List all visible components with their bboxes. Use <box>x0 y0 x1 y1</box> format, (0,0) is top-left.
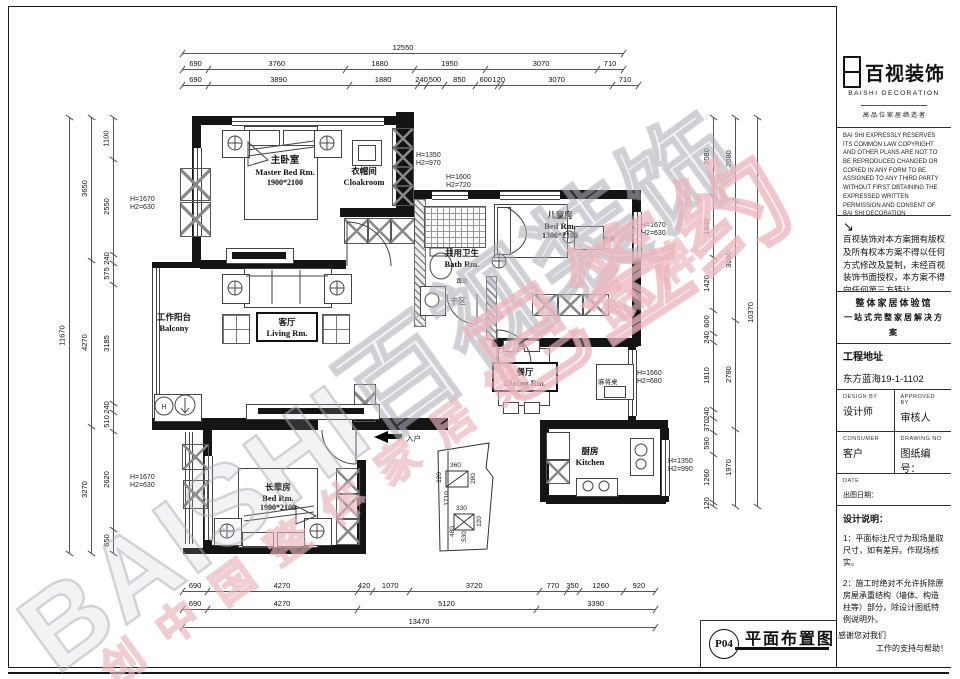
wall-segment <box>340 208 414 217</box>
height-label: H=1670H2=630 <box>641 222 666 239</box>
drawing-sheet: H 主卧室 Master Bed Rm. 1900*2100 衣帽间 Cloak… <box>0 0 960 679</box>
approved-by-cell: APPROVED BY审核人 <box>894 390 952 431</box>
company-tagline: ·高·品·位·家·居·缔·造·者· <box>861 105 927 119</box>
sofa <box>244 268 332 308</box>
address-label: 工程地址 <box>843 348 945 363</box>
height-label: H=1350H2=970 <box>416 152 441 169</box>
company-name-en: BAISHI DECORATION <box>848 90 939 97</box>
desk-label: 书桌 <box>602 233 615 243</box>
pillow <box>248 130 280 146</box>
sheet-border-outer-line <box>8 672 949 674</box>
height-label: H=1350H2=990 <box>668 458 693 475</box>
height-label: H=1660H2=680 <box>637 370 662 387</box>
chair <box>503 340 519 352</box>
room-label-kids: 儿童房 Bed Rm. 1300*2100 <box>520 210 600 241</box>
copyright-zh: 百视装饰对本方案拥有版权及所有权本方案不得以任何方式修改及复制，未经百视装饰书面… <box>843 233 945 292</box>
side-table <box>324 274 352 304</box>
closet-cell-icon <box>367 218 392 244</box>
title-underline <box>735 647 829 650</box>
entry-label: 入户 <box>406 433 421 444</box>
sink <box>420 286 446 316</box>
wardrobe-cell-icon <box>392 185 414 206</box>
height-label: H=1670H2=630 <box>130 474 155 491</box>
wardrobe-cell-icon <box>392 166 414 187</box>
mahjong-table-inner <box>604 386 626 398</box>
address-value: 东方蓝海19-1-1102 <box>843 371 945 385</box>
nightstand <box>214 518 242 546</box>
wardrobe-cell-icon <box>336 518 360 545</box>
note-item: 1：平面标注尺寸为现场量取尺寸，如有差异。作现场核实。 <box>843 533 945 569</box>
pillow <box>497 207 511 255</box>
chair <box>503 402 519 414</box>
room-label-living: 客厅 Living Rm. <box>256 312 318 342</box>
window <box>432 191 468 200</box>
consumer-row: CONSUMER客户 DRAWING NO图纸编号： <box>837 432 951 474</box>
dim-chain-top-2: 6903760188019503070710 <box>183 56 623 70</box>
wardrobe-cell-icon <box>336 493 360 520</box>
stove <box>576 478 618 497</box>
washer-counter <box>154 394 202 422</box>
chair <box>524 340 540 352</box>
detail-dim: 330 <box>456 505 467 512</box>
detail-dim: 280 <box>470 473 477 484</box>
room-label-bath: 共用卫生 Bath Rm. 蹲坑 <box>430 248 494 289</box>
closet-cell-icon <box>390 218 415 244</box>
dim-chain-left-inner: 1100255024057531852405102620650 <box>100 118 114 553</box>
coffee-table <box>322 314 350 344</box>
page-code-badge: P04 <box>709 629 739 659</box>
tv-icon <box>258 408 364 414</box>
dim-chain-bottom-1: 6904270420107037207703501260920 <box>183 578 655 592</box>
arrow-icon: ↘ <box>843 220 945 233</box>
room-label-cloakroom: 衣帽间 Cloakroom <box>334 166 394 187</box>
copyright-en: BAI SHI EXPRESSLY RESERVES ITS COMMON LA… <box>837 128 951 216</box>
detail-dim: 360 <box>450 462 461 469</box>
closet-cell-icon <box>344 218 369 244</box>
wardrobe-cell-icon <box>336 468 360 495</box>
room-label-dining: 餐厅 Dining Rm. <box>492 362 558 392</box>
room-label-master: 主卧室 Master Bed Rm. 1900*2100 <box>240 155 330 188</box>
dim-chain-left-outer: 11670 <box>56 118 70 553</box>
dim-chain-top-3: 690389018802405008506001203070710 <box>183 72 638 86</box>
plant-icon <box>183 480 208 509</box>
detail-dim: 120 <box>436 472 443 483</box>
nightstand <box>222 130 250 158</box>
date-block: DATE出图日期： <box>837 474 951 506</box>
stairwell-icon <box>180 168 211 201</box>
wall-segment <box>540 420 668 429</box>
baishi-logo-icon <box>843 56 861 88</box>
stool-inner <box>358 145 376 161</box>
stairwell-icon <box>180 202 211 237</box>
drawing-title: 平面布置图 <box>745 625 835 649</box>
detail-dim: 530 <box>461 531 468 542</box>
project-address-block: 工程地址 东方蓝海19-1-1102 <box>837 344 951 390</box>
detail-dim: 480 <box>449 526 456 537</box>
coffee-table <box>222 314 250 344</box>
wardrobe-cell-icon <box>392 147 414 168</box>
consumer-cell: CONSUMER客户 <box>837 432 894 473</box>
dim-chain-left-mid: 365042703270 <box>78 118 92 553</box>
sheet-border <box>8 6 951 668</box>
dim-chain-right-inner: 20801640142060024018102403705901260120 <box>700 118 714 506</box>
height-label: H=1670H2=630 <box>130 196 155 213</box>
wall-segment <box>183 548 207 554</box>
drawing-title-block: P04 平面布置图 <box>700 620 837 667</box>
room-label-elder: 长辈房 Bed Rm. 1900*2100 <box>238 482 318 513</box>
note-item: 2：施工时绝对不允许拆除原房屋承重结构（墙体、构造柱等）部分，除设计图纸特例说明… <box>843 578 945 626</box>
notes-title: 设计说明： <box>843 512 945 525</box>
kitchen-sink <box>630 438 654 476</box>
thanks-note: 感谢您对我们 工作的支持与帮助！ <box>838 630 948 666</box>
dim-chain-right-outer: 10370 <box>744 118 758 506</box>
mahjong-label: 麻将桌 <box>598 376 618 386</box>
room-label-kitchen: 厨房 Kitchen <box>560 446 620 467</box>
chair <box>524 402 540 414</box>
wardrobe-cell-icon <box>557 294 584 316</box>
dim-chain-bottom-2: 690427051203390 <box>183 596 655 610</box>
dresser-top <box>232 252 286 259</box>
wardrobe-cell-icon <box>392 128 414 149</box>
shower-area <box>424 206 486 248</box>
detail-dim: 120 <box>476 516 483 527</box>
nightstand <box>314 130 342 158</box>
plant-icon <box>182 444 209 470</box>
dim-chain-top-overall: 12550 <box>183 40 623 54</box>
height-label: H=1600H2=720 <box>446 174 471 191</box>
detail-dim: 1710 <box>444 491 451 505</box>
window <box>500 191 560 200</box>
window <box>232 117 384 126</box>
company-logo-block: 百视装饰 BAISHI DECORATION ·高·品·位·家·居·缔·造·者· <box>837 6 951 128</box>
wardrobe-cell-icon <box>532 294 559 316</box>
dry-area-label: 干区 <box>450 296 466 307</box>
slogan-block: 整体家居体验馆 一站式完整家居解决方案 <box>837 292 951 344</box>
nightstand <box>304 518 332 546</box>
title-block-sidebar: 百视装饰 BAISHI DECORATION ·高·品·位·家·居·缔·造·者·… <box>836 6 951 667</box>
room-label-balcony: 工作阳台 Balcony <box>146 312 202 333</box>
dim-chain-bottom-overall: 13470 <box>183 614 655 628</box>
pillow <box>242 532 274 547</box>
side-table <box>222 274 250 304</box>
pillow <box>283 130 315 146</box>
design-by-cell: DESIGN BY设计师 <box>837 390 894 431</box>
drawing-no-cell: DRAWING NO图纸编号： <box>894 432 952 473</box>
dim-chain-right-mid: 2080306027801970 <box>722 118 736 506</box>
copyright-zh-block: ↘ 百视装饰对本方案拥有版权及所有权本方案不得以任何方式修改及复制，未经百视装饰… <box>837 216 951 292</box>
designer-row: DESIGN BY设计师 APPROVED BY审核人 <box>837 390 951 432</box>
design-notes-block: 设计说明： 1：平面标注尺寸为现场量取尺寸，如有差异。作现场核实。 2：施工时绝… <box>837 506 951 628</box>
wardrobe-cell-icon <box>582 294 609 316</box>
company-name-zh: 百视装饰 <box>865 59 945 86</box>
